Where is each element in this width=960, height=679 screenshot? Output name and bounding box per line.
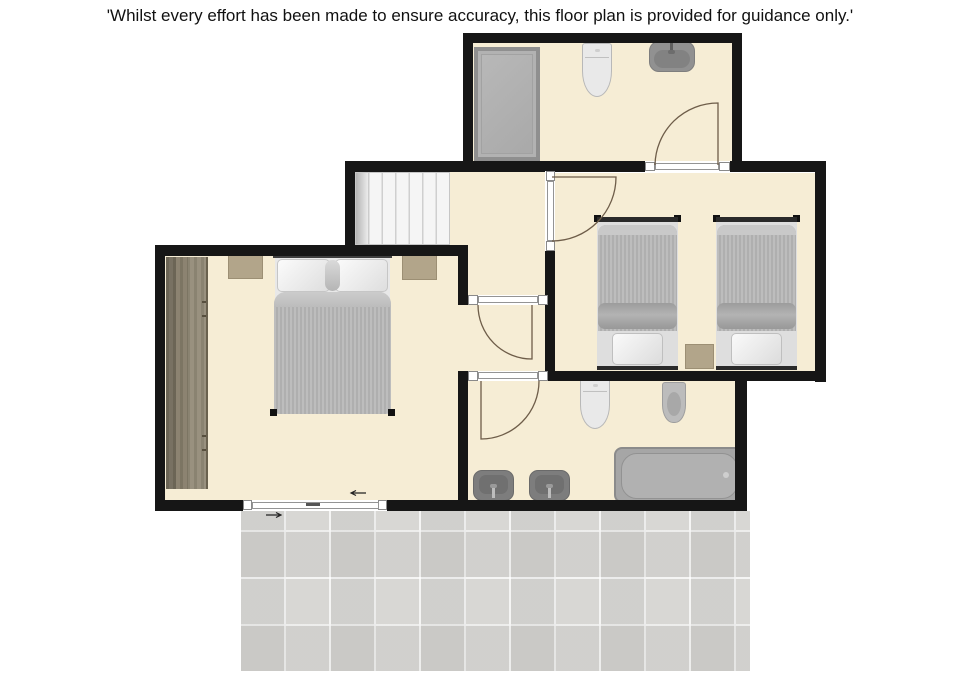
nightstand xyxy=(685,344,714,369)
wall xyxy=(732,33,742,172)
toilet xyxy=(582,43,612,97)
basin xyxy=(529,470,570,501)
wardrobe-handle xyxy=(202,301,206,303)
toilet-cistern-line xyxy=(583,391,607,392)
basin xyxy=(473,470,514,501)
bathtub-inner xyxy=(621,453,738,499)
pillow xyxy=(731,333,782,365)
duvet-fold xyxy=(717,225,796,235)
basin-tap-icon xyxy=(492,487,495,498)
toilet xyxy=(580,378,610,429)
wall xyxy=(155,245,468,256)
basin-tap-dot xyxy=(490,484,497,488)
toilet-cistern-line xyxy=(585,57,609,58)
wall xyxy=(345,161,826,172)
wall xyxy=(463,33,473,172)
duvet xyxy=(274,292,391,414)
disclaimer-text: 'Whilst every effort has been made to en… xyxy=(0,6,960,26)
basin-tap-dot xyxy=(668,50,675,54)
pillow xyxy=(277,259,330,292)
duvet-fold xyxy=(598,225,677,235)
wardrobe-handle xyxy=(202,315,206,317)
shower-tray xyxy=(481,54,533,154)
duvet-fold xyxy=(274,292,391,307)
wall xyxy=(345,161,355,256)
bidet xyxy=(662,382,686,423)
blanket-roll xyxy=(717,303,796,329)
bed-foot-bar xyxy=(716,366,797,370)
door-leaf xyxy=(478,372,538,379)
wall xyxy=(458,500,747,511)
floorplan-page: 'Whilst every effort has been made to en… xyxy=(0,0,960,679)
door-jamb xyxy=(378,500,387,510)
wall xyxy=(458,371,468,511)
door-leaf xyxy=(547,181,554,241)
shower-enclosure xyxy=(474,47,540,161)
basin xyxy=(649,41,695,72)
wardrobe-handle xyxy=(202,435,206,437)
center-cushion xyxy=(325,260,340,291)
bidet-bowl xyxy=(667,392,681,416)
pillow xyxy=(612,333,663,365)
door-jamb xyxy=(468,371,478,381)
door-jamb xyxy=(719,162,730,171)
door-jamb xyxy=(538,295,548,305)
bedside-table-left xyxy=(228,254,263,279)
bed-foot-bar xyxy=(597,366,678,370)
bed-post xyxy=(270,409,277,416)
single-bed-2 xyxy=(716,215,797,370)
blanket-roll xyxy=(598,303,677,329)
door-jamb xyxy=(243,500,252,510)
toilet-flush-dot xyxy=(593,384,598,387)
door-jamb xyxy=(645,162,655,171)
door-leaf xyxy=(655,163,719,170)
wall xyxy=(458,245,468,305)
door-jamb xyxy=(538,371,548,381)
basin-tap-icon xyxy=(548,487,551,498)
wardrobe-handle xyxy=(202,449,206,451)
bathtub xyxy=(614,447,743,503)
bathtub-drain xyxy=(723,472,729,478)
basin-tap-dot xyxy=(546,484,553,488)
door-jamb xyxy=(546,241,555,251)
toilet-flush-dot xyxy=(595,49,600,52)
wall xyxy=(155,245,165,511)
bed-post xyxy=(388,409,395,416)
door-jamb xyxy=(546,171,555,181)
wall xyxy=(815,161,826,382)
room-hallway xyxy=(458,305,545,371)
bedside-table-right xyxy=(402,255,437,280)
door-leaf xyxy=(478,296,538,303)
wall xyxy=(735,371,747,511)
single-bed-1 xyxy=(597,215,678,370)
pillow xyxy=(335,259,388,292)
staircase-top-shading xyxy=(356,173,370,244)
sliding-door-overlap xyxy=(306,503,320,506)
door-jamb xyxy=(468,295,478,305)
terrace xyxy=(241,511,750,671)
wall xyxy=(463,33,742,43)
double-bed xyxy=(273,248,392,416)
wardrobe xyxy=(166,257,208,489)
